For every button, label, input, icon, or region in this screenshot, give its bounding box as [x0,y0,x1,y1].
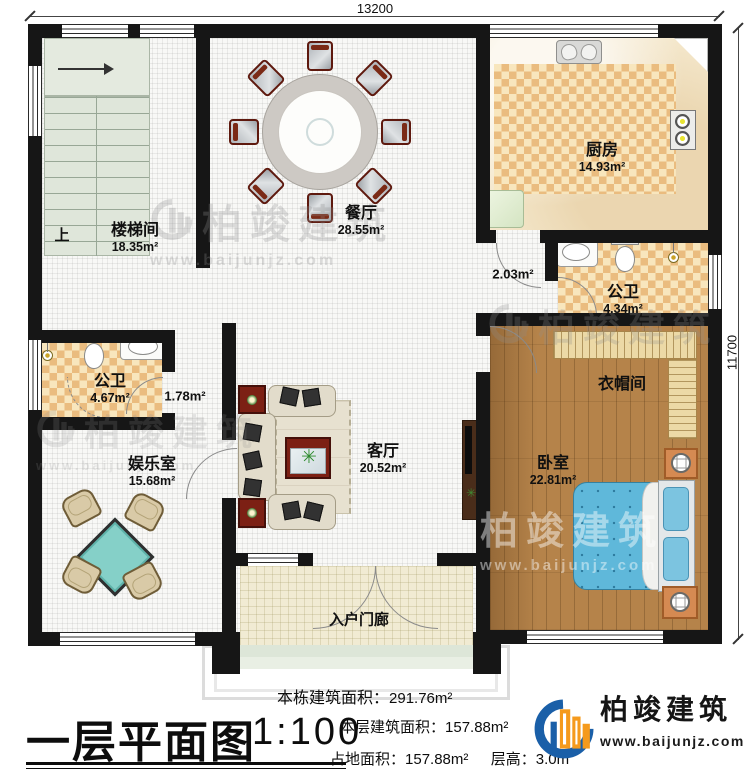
wall-kitchen-bottom [476,230,496,243]
wall-kitchen-bottom [540,230,722,243]
stat-label: 层高： [491,751,536,768]
room-label-bath-left: 公卫4.67m² [90,373,130,405]
room-label-bath-right: 公卫4.34m² [603,284,643,316]
window [490,24,658,38]
toilet-bowl [615,246,635,272]
wall-right [708,24,722,642]
plant-icon: ✳ [299,448,319,468]
wall-bath-left-side [162,413,175,430]
wall-dining-kitchen [476,38,490,230]
dining-chair [307,193,333,223]
window [248,553,298,566]
dining-table-center [306,118,334,146]
stat-floor-area: 本层建筑面积：157.88m² [340,716,508,737]
stair-arrow-icon [104,63,114,75]
title-underline [26,762,346,765]
plan-title: 一层平面图 [26,706,256,770]
area-label-hall-left: 1.78m² [164,389,205,404]
tv [465,426,472,474]
porch-pillar-right [473,632,501,674]
stat-label: 本层建筑面积： [340,719,445,736]
brand-name: 柏竣建筑 [600,696,745,724]
table-lamp [670,592,690,612]
table-lamp [671,453,691,473]
stair-up-label: 上 [54,227,69,245]
dining-chair [381,119,411,145]
porch-step [212,645,501,657]
room-label-stairwell: 楼梯间18.35m² [111,222,159,254]
window [28,340,42,410]
top-dimension-value: 13200 [330,1,420,16]
bathroom-sink-basin [562,243,590,261]
wall-bath-left-bottom [28,417,175,430]
stat-building-total: 本栋建筑面积：291.76m² [277,684,452,708]
brand-logo: 柏竣建筑 www.baijunjz.com [532,696,745,766]
stat-label: 本栋建筑面积： [277,690,389,707]
wall-bath-left-side [162,330,175,372]
wall-entertainment-east [222,498,236,646]
sofa-cushion [302,388,321,407]
wall-bath-left-top [28,330,175,343]
pillow [663,487,689,531]
dining-chair [307,41,333,71]
stove-burner [675,131,690,146]
title-underline-thin [26,768,346,769]
stair-landing [44,38,150,96]
dining-chair [229,119,259,145]
brand-text: 柏竣建筑 www.baijunjz.com [600,696,745,749]
room-label-cloakroom: 衣帽间 [598,376,646,394]
wall-entertainment-east [222,323,236,440]
brand-url: www.baijunjz.com [600,731,745,749]
area-label-hall-right: 2.03m² [492,267,533,282]
sofa-cushion [279,386,299,406]
top-dimension-line [30,16,720,17]
wall-bath-right-bottom [476,313,722,326]
stair-direction-line [58,68,108,70]
stair-divider [96,96,97,256]
window [140,24,194,38]
wall-bath-right-side [545,243,558,281]
window [28,66,42,136]
room-label-living: 客厅20.52m² [360,443,407,475]
sofa-cushion [282,501,302,521]
pillow [663,537,689,581]
room-label-entertainment: 娱乐室15.68m² [128,456,176,488]
window [60,632,195,646]
right-dimension-value: 11700 [725,323,740,383]
stat-value: 291.76m² [389,690,452,707]
wardrobe-rack-top [553,331,697,359]
stove-burner [675,114,690,129]
refrigerator [484,190,524,228]
room-label-dining: 餐厅28.55m² [338,205,385,237]
room-label-bedroom: 卧室22.81m² [530,455,577,487]
window [527,630,663,644]
floor-plan-page: 13200 11700 [0,0,750,782]
toilet-bowl [84,343,104,369]
stat-label: 占地面积： [330,751,405,768]
side-table [238,385,266,414]
shower-head [668,252,679,263]
porch-step [212,657,501,669]
stat-value: 157.88m² [445,719,508,736]
sofa-bottom [268,494,336,530]
stat-value: 157.88m² [405,751,468,768]
wardrobe-rack-side [668,359,697,439]
sofa-cushion [243,423,263,443]
brand-logo-icon [532,696,594,766]
kitchen-tile-rug [494,64,676,194]
room-label-porch: 入户门廊 [329,613,389,630]
window [62,24,128,38]
side-table [238,498,266,528]
wall-bedroom-left [476,326,490,336]
wall-living-bottom [437,553,476,566]
room-label-kitchen: 厨房14.93m² [579,142,626,174]
sofa-cushion [242,450,262,470]
sofa-cushion [243,478,262,497]
window [708,255,722,309]
wall-stair-dining [196,38,210,268]
wall-bedroom-left [476,372,490,632]
